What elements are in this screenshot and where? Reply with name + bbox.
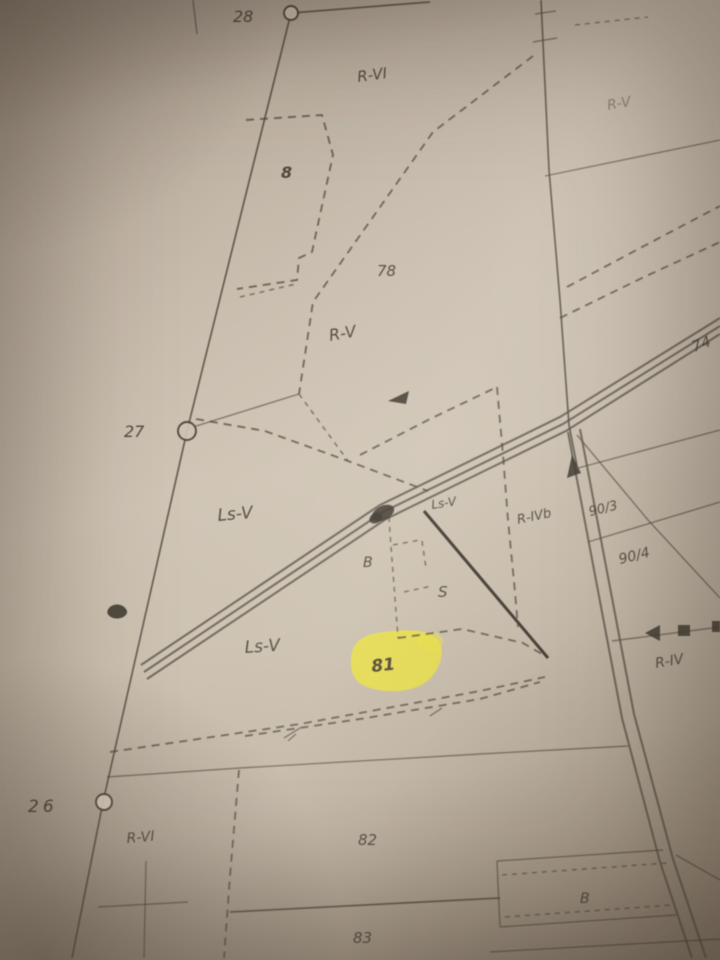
arrow-icon: [388, 391, 409, 404]
parcel-82-83-line: [230, 898, 500, 912]
parcel-90-4-label: 90/4: [617, 545, 651, 568]
parcel-8-step: [240, 284, 296, 297]
bottom-vertical-boundary: [224, 770, 239, 958]
zone-label-r-v-top-right: R-V: [606, 94, 634, 114]
survey-point-27-label: 27: [124, 422, 145, 441]
main-road-edge-north: [141, 318, 720, 665]
parcel-8-outline: [237, 115, 333, 289]
small-tick-mark: [430, 708, 442, 716]
survey-point-28-label: 28: [233, 7, 253, 26]
parcel-83-label: 83: [353, 929, 372, 947]
cadastral-map-photo: 28 27 26 R-VI R-V 8 78 R-V Ls-V Ls-V R-I…: [0, 0, 720, 960]
parcel-78-label: 78: [377, 262, 396, 280]
survey-point-26-marker: [96, 794, 112, 810]
parcel-b-steps: [393, 540, 432, 592]
west-boundary-line: [72, 2, 430, 958]
building-band-left: [497, 861, 500, 927]
cross-mark-vertical: [144, 861, 146, 958]
survey-point-28-marker: [284, 6, 298, 20]
zone-label-ls-v-upper: Ls-V: [217, 503, 255, 526]
bottom-diagonal-upper: [110, 677, 545, 752]
marker-row-line: [612, 627, 720, 641]
orchard-s-label: S: [438, 583, 448, 601]
survey-point-27-marker: [178, 422, 196, 440]
cross-mark-horizontal: [98, 902, 188, 907]
parcel-82-label: 82: [358, 831, 377, 849]
zone-label-r-v-center: R-V: [327, 321, 358, 345]
east-dashed-lower: [560, 242, 720, 318]
parcel-b-west-edge: [389, 517, 398, 638]
building-band-inner-top: [502, 863, 667, 875]
parcel-8-label: 8: [281, 163, 292, 182]
parcel-81-label: 81: [370, 655, 396, 677]
south-road-fork-line: [676, 855, 720, 880]
corner-south-boundary: [497, 387, 518, 627]
zone-label-r-ivb: R-IVb: [516, 506, 553, 528]
junction-line-27: [193, 394, 299, 427]
zone-label-r-vi-top: R-VI: [356, 64, 389, 86]
survey-tick-1: [535, 11, 556, 14]
parcel-82-top-line: [107, 746, 628, 777]
mid-rising-boundary: [360, 387, 497, 455]
cadastral-map-drawing: 28 27 26 R-VI R-V 8 78 R-V Ls-V Ls-V R-I…: [0, 0, 720, 960]
point27-junction-dash: [299, 394, 348, 461]
survey-tick-2: [533, 38, 557, 42]
building-band-bottom: [500, 915, 676, 927]
utility-markers-icon: [645, 621, 720, 641]
building-b-bottom-label: B: [580, 891, 590, 907]
bottom-edge-line: [490, 939, 720, 952]
east-dashed-upper: [567, 206, 720, 287]
building-band-top: [497, 850, 663, 861]
east-cross-line: [545, 140, 720, 176]
zone-label-ls-v-small: Ls-V: [430, 494, 458, 512]
building-b-mid-label: B: [363, 555, 373, 571]
point27-east-boundary: [196, 419, 428, 491]
zone-label-r-iv: R-IV: [654, 651, 686, 672]
east-boundary-line: [541, 0, 577, 466]
zone-label-ls-v-lower: Ls-V: [244, 635, 282, 658]
survey-point-26-label: 26: [28, 797, 58, 817]
top-left-stub-line: [193, 0, 197, 34]
parcel-90-3-label: 90/3: [587, 498, 619, 520]
zone-label-r-vi-bottom: R-VI: [126, 829, 155, 847]
top-right-dashes: [575, 17, 648, 25]
ink-blot-icon: [107, 604, 127, 618]
